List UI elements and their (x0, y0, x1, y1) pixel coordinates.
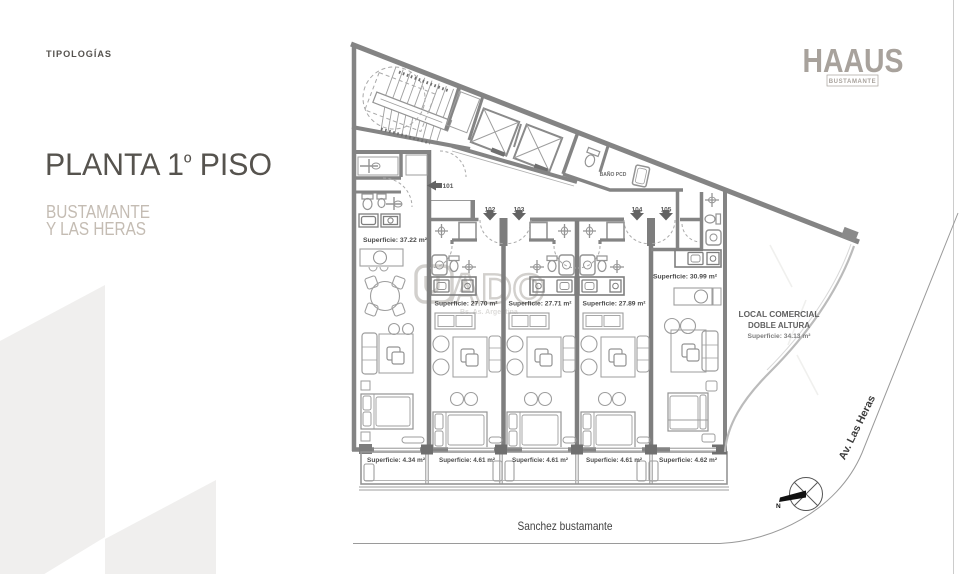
svg-text:Superficie: 4.61 m²: Superficie: 4.61 m² (512, 457, 568, 464)
svg-text:Y LAS HERAS: Y LAS HERAS (46, 218, 146, 239)
svg-text:N: N (776, 503, 781, 510)
svg-text:Superficie: 4.62 m²: Superficie: 4.62 m² (659, 457, 717, 464)
svg-text:Superficie: 30.99 m²: Superficie: 30.99 m² (653, 274, 717, 281)
svg-text:DOBLE ALTURA: DOBLE ALTURA (748, 321, 810, 330)
svg-text:PLANTA 1º PISO: PLANTA 1º PISO (45, 146, 272, 182)
svg-text:BAÑO PCD: BAÑO PCD (600, 171, 627, 178)
svg-text:BUSTAMANTE: BUSTAMANTE (829, 79, 877, 85)
svg-text:LOCAL COMERCIAL: LOCAL COMERCIAL (739, 310, 820, 319)
svg-text:Superficie: 4.34 m²: Superficie: 4.34 m² (367, 457, 425, 464)
svg-text:Superficie: 27.70 m²: Superficie: 27.70 m² (435, 301, 498, 308)
svg-text:TIPOLOGÍAS: TIPOLOGÍAS (46, 49, 112, 60)
svg-text:101: 101 (443, 183, 454, 190)
svg-text:Sanchez bustamante: Sanchez bustamante (518, 519, 613, 533)
svg-text:Superficie: 37.22 m²: Superficie: 37.22 m² (363, 237, 427, 244)
svg-text:Superficie: 4.61 m²: Superficie: 4.61 m² (439, 457, 495, 464)
svg-text:Superficie: 34.13 m²: Superficie: 34.13 m² (748, 333, 811, 340)
svg-text:Superficie: 27.71 m²: Superficie: 27.71 m² (509, 301, 572, 308)
svg-text:Superficie: 4.61 m²: Superficie: 4.61 m² (586, 457, 642, 464)
svg-text:HAAUS: HAAUS (803, 42, 904, 79)
svg-text:Superficie: 27.89 m²: Superficie: 27.89 m² (583, 301, 646, 308)
